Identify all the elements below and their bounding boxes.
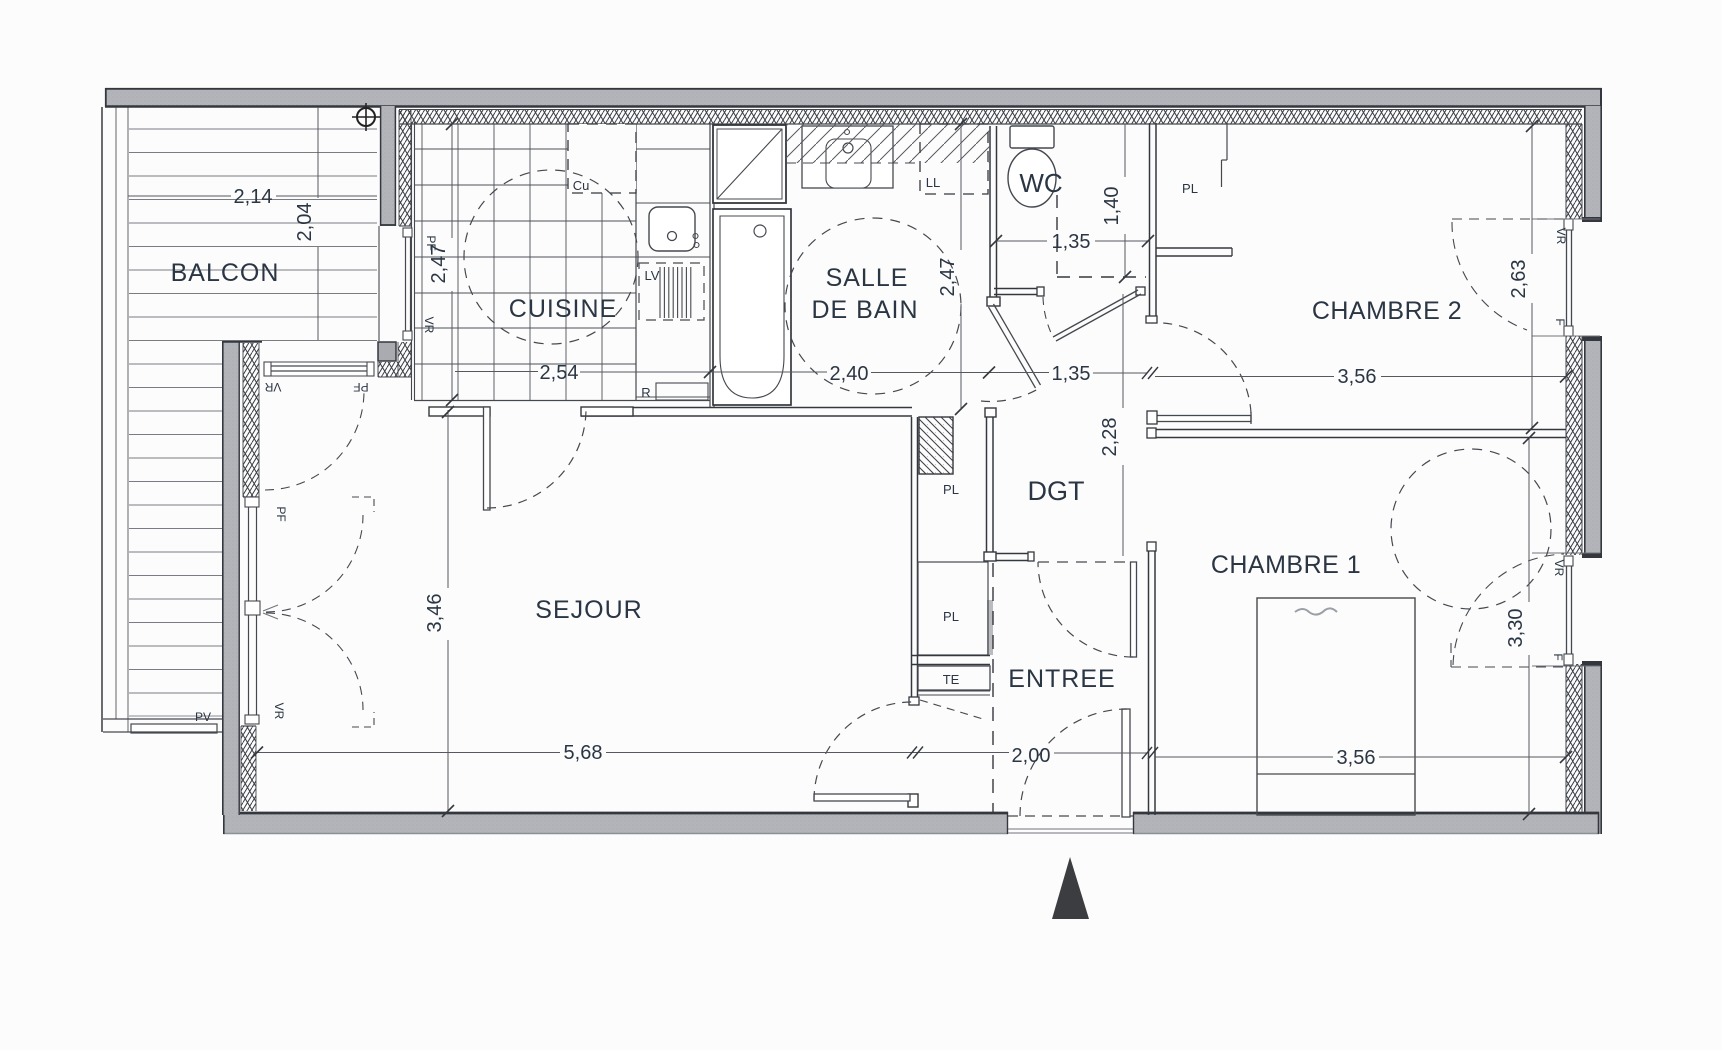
svg-text:SEJOUR: SEJOUR: [535, 596, 642, 624]
svg-text:PF: PF: [424, 235, 438, 250]
svg-text:LL: LL: [926, 175, 940, 190]
svg-text:VR: VR: [272, 703, 286, 720]
svg-text:WC: WC: [1019, 168, 1062, 198]
svg-text:5,68: 5,68: [564, 742, 603, 764]
svg-text:Cu: Cu: [573, 178, 590, 193]
svg-text:3,30: 3,30: [1505, 609, 1527, 648]
svg-text:SALLE: SALLE: [826, 264, 909, 292]
svg-text:1,35: 1,35: [1052, 231, 1091, 253]
svg-text:PV: PV: [195, 710, 211, 724]
svg-text:2,04: 2,04: [294, 203, 316, 242]
svg-text:CHAMBRE 2: CHAMBRE 2: [1312, 297, 1462, 325]
svg-text:F: F: [1551, 653, 1565, 660]
svg-text:2,54: 2,54: [540, 362, 579, 384]
svg-text:LV: LV: [645, 268, 660, 283]
svg-text:TE: TE: [943, 672, 960, 687]
svg-text:2,47: 2,47: [937, 258, 959, 297]
svg-text:VR: VR: [264, 380, 281, 394]
svg-text:3,56: 3,56: [1337, 747, 1376, 769]
svg-text:PL: PL: [943, 609, 959, 624]
svg-text:DE BAIN: DE BAIN: [811, 296, 918, 324]
svg-text:CUISINE: CUISINE: [509, 295, 617, 323]
svg-text:2,63: 2,63: [1508, 260, 1530, 299]
svg-text:3,56: 3,56: [1338, 366, 1377, 388]
svg-text:PL: PL: [1182, 181, 1198, 196]
svg-text:2,14: 2,14: [234, 186, 273, 208]
svg-text:1,35: 1,35: [1052, 363, 1091, 385]
svg-text:3,46: 3,46: [424, 594, 446, 633]
svg-text:VR: VR: [1552, 560, 1566, 577]
svg-text:CHAMBRE 1: CHAMBRE 1: [1211, 551, 1361, 579]
svg-text:VR: VR: [422, 317, 436, 334]
svg-text:1,40: 1,40: [1101, 187, 1123, 226]
svg-text:R: R: [641, 385, 650, 400]
svg-text:PF: PF: [274, 506, 288, 521]
svg-text:VR: VR: [1554, 228, 1568, 245]
svg-text:F: F: [1553, 318, 1567, 325]
svg-text:DGT: DGT: [1028, 476, 1085, 506]
svg-text:ENTREE: ENTREE: [1008, 665, 1115, 693]
svg-text:2,40: 2,40: [830, 363, 869, 385]
svg-text:PL: PL: [943, 482, 959, 497]
svg-text:2,28: 2,28: [1099, 418, 1121, 457]
svg-text:BALCON: BALCON: [171, 259, 280, 287]
svg-text:2,00: 2,00: [1012, 745, 1051, 767]
svg-text:PF: PF: [353, 380, 368, 394]
